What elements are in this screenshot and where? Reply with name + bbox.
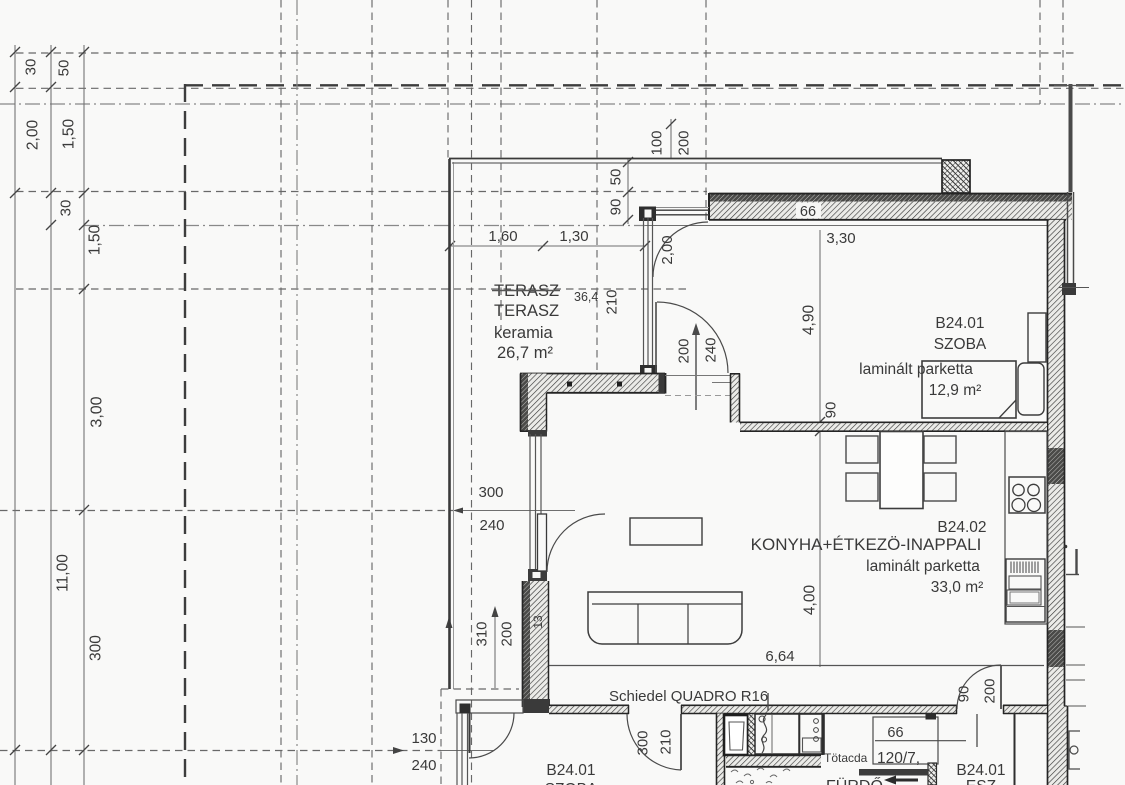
- svg-text:90: 90: [956, 686, 973, 703]
- svg-text:200: 200: [499, 621, 516, 646]
- svg-text:240: 240: [479, 517, 504, 534]
- svg-text:90: 90: [823, 402, 840, 419]
- svg-text:130: 130: [411, 730, 436, 747]
- svg-text:B24.01: B24.01: [935, 315, 984, 332]
- svg-text:B24.01: B24.01: [546, 762, 595, 779]
- svg-text:36,4: 36,4: [574, 290, 598, 304]
- svg-text:13: 13: [531, 615, 545, 629]
- svg-text:300: 300: [635, 730, 652, 755]
- svg-text:3,00: 3,00: [89, 396, 106, 427]
- svg-text:200: 200: [676, 130, 693, 155]
- svg-text:26,7 m²: 26,7 m²: [497, 344, 553, 362]
- svg-text:3,30: 3,30: [826, 230, 855, 247]
- svg-text:TERASZ: TERASZ: [494, 302, 559, 320]
- svg-text:11,00: 11,00: [55, 554, 72, 592]
- svg-text:B24.02: B24.02: [937, 519, 986, 536]
- svg-text:90: 90: [608, 199, 625, 216]
- svg-text:1,50: 1,50: [61, 119, 78, 150]
- svg-text:6,64: 6,64: [765, 648, 794, 665]
- svg-text:210: 210: [658, 729, 675, 754]
- svg-text:SZOBA: SZOBA: [934, 336, 987, 353]
- svg-text:4,90: 4,90: [801, 305, 818, 336]
- svg-text:B24.01: B24.01: [956, 762, 1005, 779]
- svg-text:4,00: 4,00: [802, 585, 819, 616]
- svg-text:keramia: keramia: [494, 324, 554, 342]
- svg-text:30: 30: [58, 200, 75, 217]
- svg-text:30: 30: [23, 59, 40, 76]
- svg-text:66: 66: [887, 725, 903, 741]
- svg-text:33,0 m²: 33,0 m²: [931, 579, 984, 596]
- svg-text:FÜRDŐ: FÜRDŐ: [826, 776, 883, 785]
- svg-text:1,60: 1,60: [488, 228, 517, 245]
- svg-text:300: 300: [478, 484, 503, 501]
- svg-text:210: 210: [604, 289, 621, 314]
- svg-text:66: 66: [800, 204, 816, 220]
- svg-text:laminált parketta: laminált parketta: [859, 361, 973, 378]
- svg-text:240: 240: [411, 757, 436, 774]
- svg-text:50: 50: [56, 60, 73, 77]
- svg-text:laminált parketta: laminált parketta: [866, 558, 980, 575]
- svg-text:KONYHA+ÉTKEZÖ-INAPPALI: KONYHA+ÉTKEZÖ-INAPPALI: [751, 535, 982, 554]
- svg-text:2,00: 2,00: [659, 235, 676, 264]
- svg-text:50: 50: [608, 169, 625, 186]
- svg-text:200: 200: [676, 338, 693, 363]
- svg-text:Schiedel QUADRO R16: Schiedel QUADRO R16: [609, 688, 768, 705]
- svg-text:1,50: 1,50: [87, 225, 104, 256]
- svg-text:240: 240: [703, 337, 720, 362]
- svg-text:12,9 m²: 12,9 m²: [929, 382, 982, 399]
- svg-text:ESZ: ESZ: [966, 778, 996, 785]
- svg-text:200: 200: [982, 678, 999, 703]
- svg-text:300: 300: [88, 635, 105, 661]
- svg-text:310: 310: [474, 621, 491, 646]
- svg-text:Tötacda: Tötacda: [824, 751, 868, 765]
- svg-text:SZOBA: SZOBA: [545, 781, 598, 785]
- svg-text:1,30: 1,30: [559, 228, 588, 245]
- svg-text:100: 100: [649, 130, 666, 155]
- svg-text:120/7,: 120/7,: [877, 750, 920, 767]
- svg-text:2,00: 2,00: [25, 120, 42, 151]
